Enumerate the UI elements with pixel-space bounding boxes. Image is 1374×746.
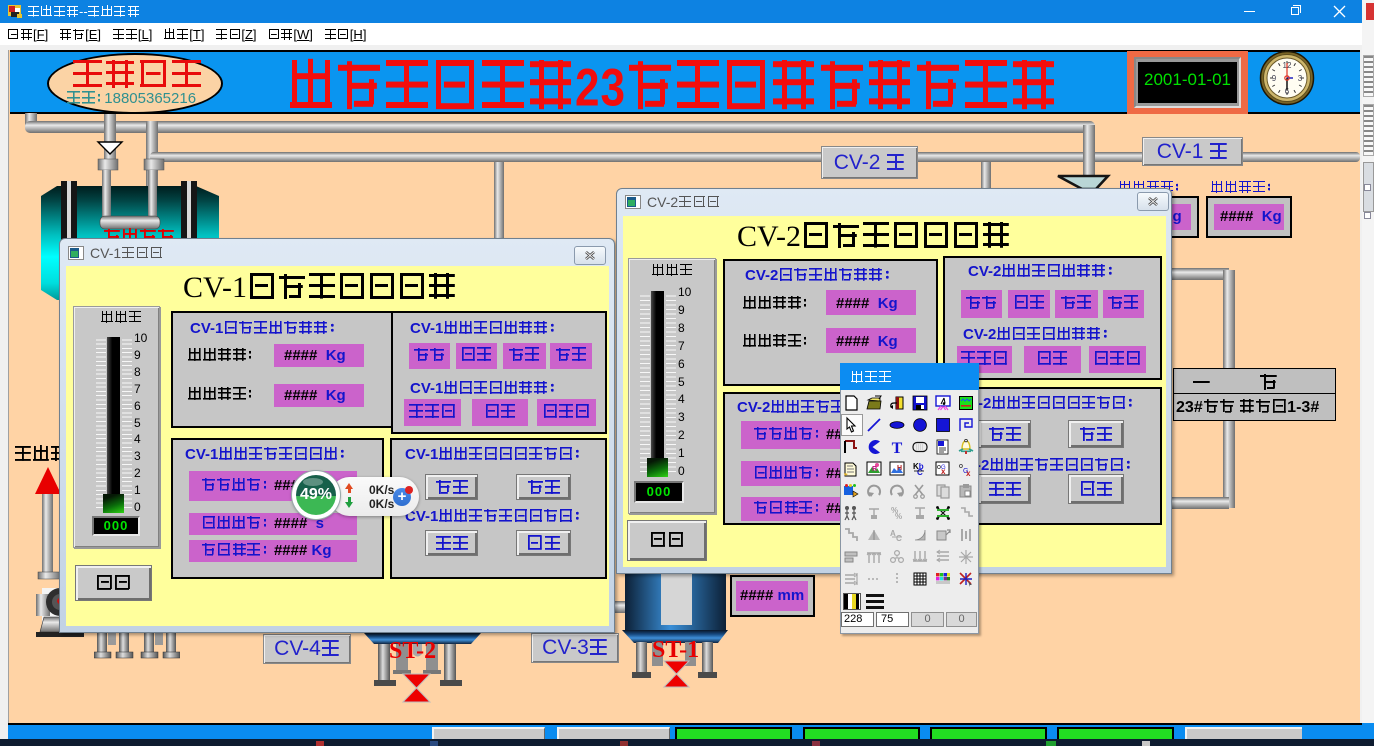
svg-text:C: C [917, 468, 923, 477]
svg-text:T: T [892, 440, 903, 457]
svg-text:C: C [896, 534, 902, 543]
svg-text:x: x [966, 469, 971, 478]
svg-text:H: H [897, 465, 902, 472]
svg-text:%: % [895, 512, 902, 521]
svg-text:G: G [941, 465, 946, 471]
svg-text:R: R [872, 466, 877, 473]
